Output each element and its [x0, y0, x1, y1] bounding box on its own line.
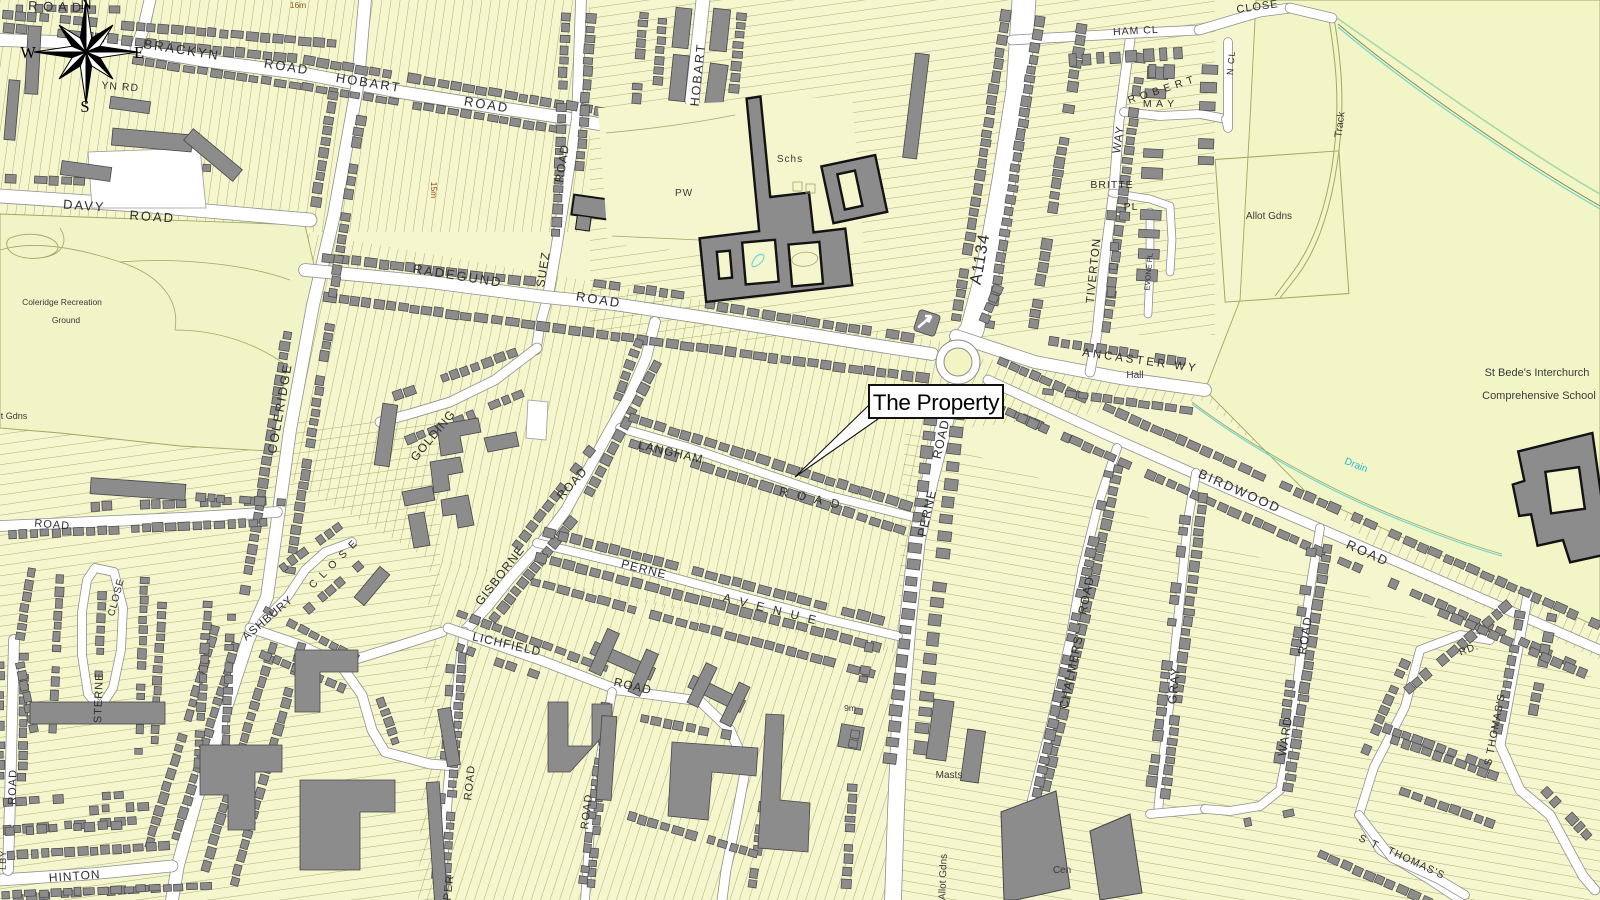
svg-text:ROAD: ROAD [129, 207, 175, 225]
svg-text:R O A D: R O A D [28, 0, 82, 15]
svg-text:Hall: Hall [1126, 370, 1143, 381]
svg-text:Masts: Masts [936, 770, 963, 781]
svg-text:S: S [80, 97, 89, 116]
svg-text:The Property: The Property [873, 390, 1001, 415]
svg-text:16m: 16m [290, 0, 307, 10]
svg-text:ROAD: ROAD [6, 769, 19, 805]
svg-text:St Bede's Interchurch: St Bede's Interchurch [1485, 367, 1590, 379]
svg-text:HAM CL: HAM CL [1113, 24, 1159, 38]
svg-text:9m: 9m [844, 703, 856, 713]
svg-text:Cen: Cen [1053, 865, 1071, 876]
svg-text:PL: PL [1124, 201, 1139, 213]
svg-text:PER: PER [442, 874, 457, 900]
svg-text:Ground: Ground [52, 315, 81, 325]
svg-text:PW: PW [675, 188, 693, 199]
svg-text:LBY: LBY [0, 850, 8, 870]
svg-text:STERNE: STERNE [92, 672, 106, 723]
svg-text:DAVY: DAVY [63, 197, 106, 215]
svg-text:Allot Gdns: Allot Gdns [1246, 211, 1292, 222]
svg-text:W: W [20, 43, 36, 62]
svg-text:BRITTE: BRITTE [1090, 179, 1133, 191]
svg-text:Comprehensive School: Comprehensive School [1482, 390, 1596, 402]
svg-text:Allot Gdns: Allot Gdns [937, 854, 950, 900]
svg-text:N CL: N CL [1225, 50, 1237, 75]
svg-text:t Gdns: t Gdns [1, 411, 28, 421]
svg-text:M A Y: M A Y [1143, 98, 1175, 110]
svg-text:15m: 15m [429, 182, 439, 199]
svg-text:Coleridge Recreation: Coleridge Recreation [22, 297, 102, 307]
svg-text:Schs: Schs [777, 154, 803, 165]
